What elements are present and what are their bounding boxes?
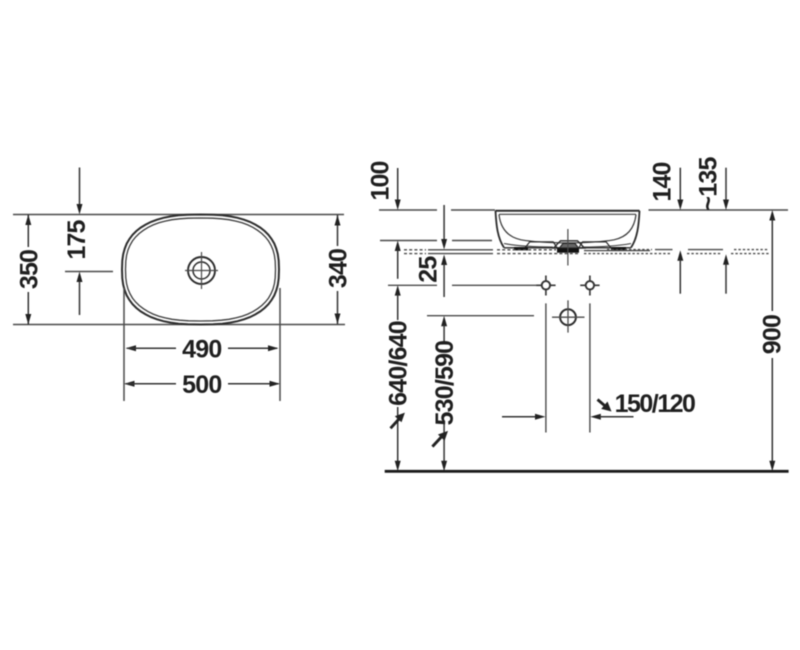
svg-text:150/120: 150/120 — [615, 390, 695, 418]
svg-text:900: 900 — [759, 315, 787, 354]
svg-text:350: 350 — [15, 250, 43, 289]
svg-text:140: 140 — [648, 162, 676, 201]
svg-text:~135: ~135 — [695, 157, 723, 211]
svg-text:530/590: 530/590 — [431, 341, 459, 426]
svg-text:25: 25 — [414, 256, 442, 283]
svg-text:500: 500 — [182, 371, 221, 399]
svg-text:640/640: 640/640 — [385, 321, 413, 406]
svg-text:490: 490 — [182, 336, 221, 364]
svg-text:100: 100 — [367, 161, 395, 200]
svg-text:175: 175 — [63, 219, 91, 259]
svg-text:340: 340 — [325, 249, 353, 288]
